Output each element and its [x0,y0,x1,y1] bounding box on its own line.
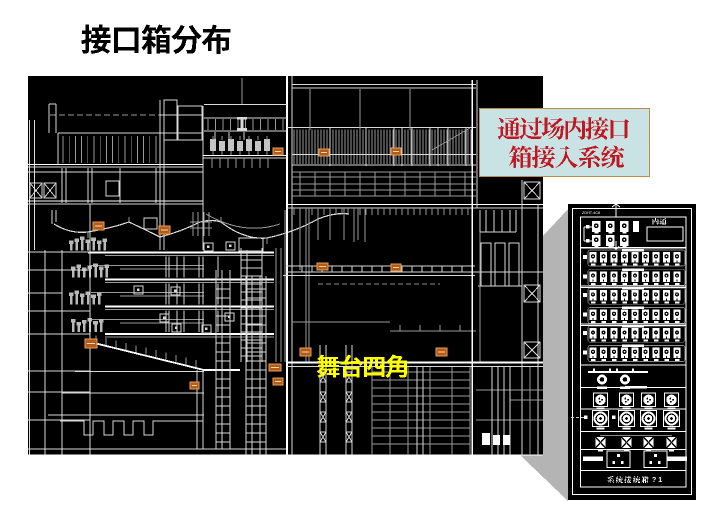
svg-text:ZDHT-4C8: ZDHT-4C8 [582,211,600,215]
svg-text:? 1: ? 1 [652,477,662,484]
